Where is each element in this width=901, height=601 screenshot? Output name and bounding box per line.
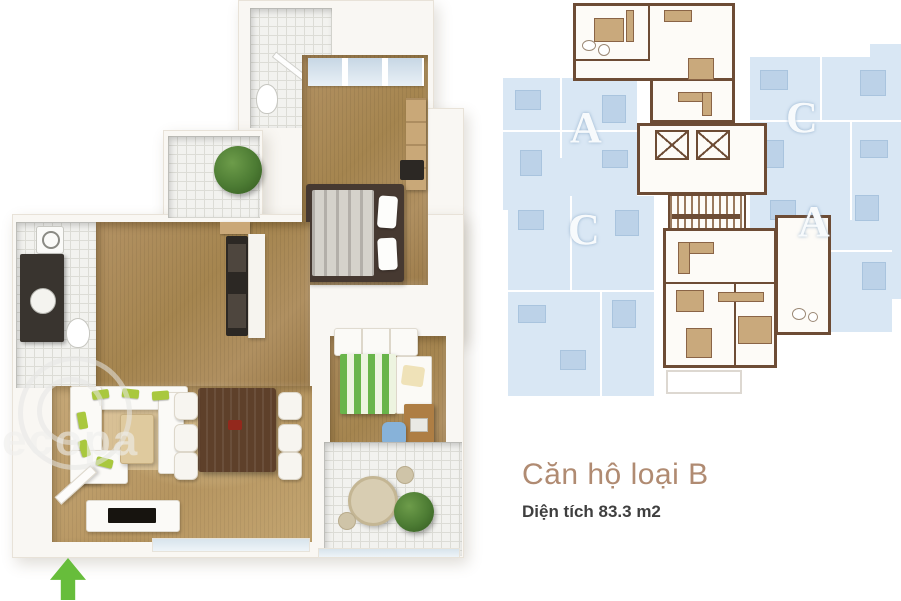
wall-line xyxy=(820,57,822,120)
furniture-hint xyxy=(860,70,886,96)
kitchen-counter xyxy=(248,234,265,338)
table-centerpiece xyxy=(228,420,242,430)
bath-fixture xyxy=(808,312,818,322)
wall-line xyxy=(665,282,775,284)
plant xyxy=(394,492,434,532)
apartment-3d-plan: ecopa xyxy=(0,0,490,601)
unit-b-table xyxy=(676,290,704,312)
furniture-hint xyxy=(518,210,544,230)
window-glass-strip xyxy=(318,548,460,558)
unit-a-upper-left-label: A xyxy=(570,106,602,150)
dining-chair xyxy=(278,424,302,452)
apartment-type-title: Căn hộ loại B xyxy=(522,458,709,492)
unit-b-bed xyxy=(738,316,772,344)
unit-b-bed xyxy=(686,328,712,358)
elevator-shaft xyxy=(655,130,689,160)
laptop xyxy=(410,418,428,432)
apartment-area-subtitle: Diện tích 83.3 m2 xyxy=(522,502,661,522)
wall-line xyxy=(508,290,654,292)
unit-b-kitchen xyxy=(718,292,764,302)
toilet xyxy=(256,84,278,114)
furniture-hint xyxy=(615,210,639,236)
washing-machine-door xyxy=(42,231,60,249)
mattress xyxy=(312,190,374,276)
furniture-hint xyxy=(612,300,636,328)
furniture-hint xyxy=(520,150,542,176)
kitchen-room-floor xyxy=(96,222,310,388)
stair-rail xyxy=(672,214,740,219)
unit-a-lower-right-label: A xyxy=(798,200,830,244)
bed-pillow xyxy=(377,195,398,228)
dining-chair xyxy=(278,452,302,480)
unit-b-sofa xyxy=(664,10,692,22)
bed2-duvet xyxy=(340,354,396,414)
bath-fixture xyxy=(582,40,596,51)
unit-c-upper-right-label: C xyxy=(786,96,818,140)
unit-b-table xyxy=(688,58,714,80)
elevator-shaft xyxy=(696,130,730,160)
sofa-pillow xyxy=(152,390,170,400)
plant xyxy=(214,146,262,194)
fridge xyxy=(228,294,246,328)
furniture-hint xyxy=(855,195,879,221)
entrance-arrow-icon xyxy=(50,558,86,600)
wall-line xyxy=(560,78,562,158)
unit-b-bed xyxy=(594,18,624,42)
balcony-outline xyxy=(666,370,742,394)
toilet xyxy=(66,318,90,348)
stool xyxy=(338,512,356,530)
furniture-hint xyxy=(560,350,586,370)
wardrobe2 xyxy=(334,328,418,356)
bath-fixture xyxy=(598,44,610,56)
wall-line xyxy=(575,59,650,61)
building-key-plan: A C C A xyxy=(490,0,901,470)
bed2-pillow xyxy=(401,365,426,388)
window-glass-strip xyxy=(152,538,310,552)
dresser xyxy=(400,160,424,180)
furniture-hint xyxy=(760,70,788,90)
furniture-hint xyxy=(518,305,546,323)
wall-line xyxy=(600,290,602,396)
watermark-text: ecopa xyxy=(2,416,202,466)
unit-c-lower-left-label: C xyxy=(568,208,600,252)
sink xyxy=(30,288,56,314)
furniture-hint xyxy=(515,90,541,110)
bedroom-window-glass xyxy=(308,58,424,86)
floorplan-page: ecopa xyxy=(0,0,901,601)
unit-b-sofa xyxy=(678,242,690,274)
stool xyxy=(396,466,414,484)
furniture-hint xyxy=(860,140,888,158)
furniture-hint xyxy=(602,150,628,168)
unit-b-kitchen xyxy=(702,92,712,116)
wall-line xyxy=(750,120,901,122)
unit-b-wardrobe xyxy=(626,10,634,42)
bath-fixture xyxy=(792,308,806,320)
oven xyxy=(228,244,246,272)
wall-line xyxy=(850,120,852,220)
dining-chair xyxy=(278,392,302,420)
kitchen-upper-cabinet xyxy=(220,222,250,234)
wall-line xyxy=(648,5,650,61)
bed-pillow xyxy=(377,238,398,271)
furniture-hint xyxy=(602,95,626,123)
dining-table xyxy=(198,388,276,472)
furniture-hint xyxy=(862,262,886,290)
tv xyxy=(108,508,156,523)
